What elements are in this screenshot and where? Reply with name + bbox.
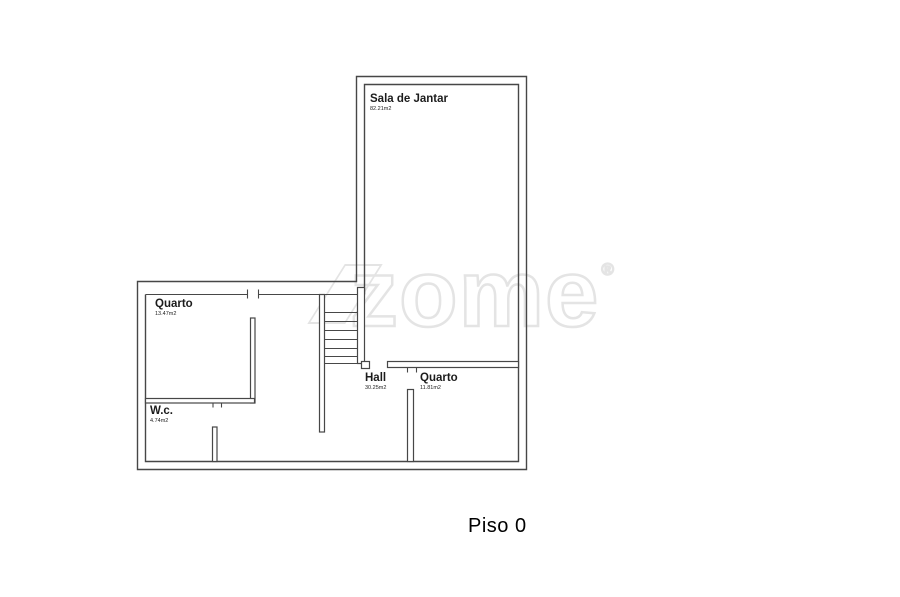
room-label-hall: Hall 30.25m2 <box>365 372 386 391</box>
floor-plan-page: zome ® <box>0 0 900 597</box>
room-label-quarto-left: Quarto 13.47m2 <box>155 298 193 317</box>
room-area: 4.74m2 <box>150 419 173 425</box>
room-name: Quarto <box>155 298 193 310</box>
floor-title: Piso 0 <box>468 515 527 538</box>
room-label-quarto-right: Quarto 11.81m2 <box>420 372 458 391</box>
wall-jamb <box>362 362 370 369</box>
interior-walls <box>146 288 519 462</box>
room-name: W.c. <box>150 405 173 417</box>
room-area: 82.21m2 <box>370 107 448 113</box>
room-name: Quarto <box>420 372 458 384</box>
room-area: 13.47m2 <box>155 312 193 318</box>
floor-plan-drawing <box>0 0 900 597</box>
room-label-wc: W.c. 4.74m2 <box>150 405 173 424</box>
stairs <box>325 313 358 364</box>
room-area: 11.81m2 <box>420 386 458 392</box>
room-name: Sala de Jantar <box>370 93 448 105</box>
room-name: Hall <box>365 372 386 384</box>
room-area: 30.25m2 <box>365 386 386 392</box>
room-label-sala-de-jantar: Sala de Jantar 82.21m2 <box>370 93 448 112</box>
outer-walls <box>138 77 527 470</box>
